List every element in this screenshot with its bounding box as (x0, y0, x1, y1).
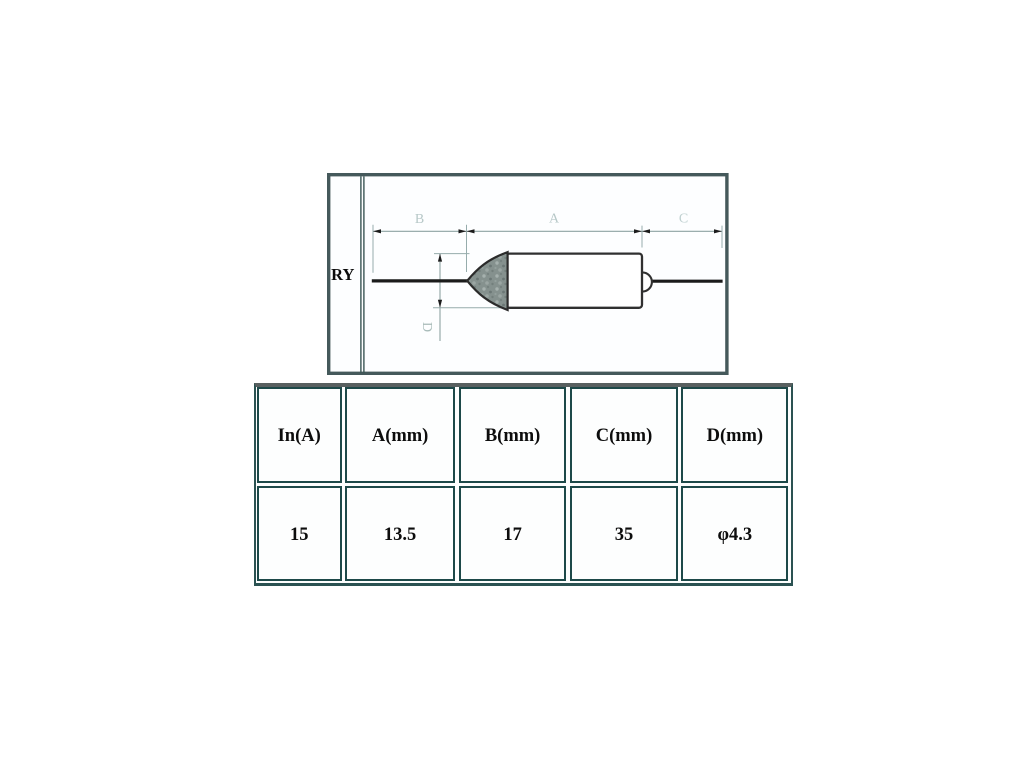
svg-text:D: D (419, 322, 434, 332)
svg-text:RY: RY (331, 265, 354, 284)
svg-text:C: C (679, 212, 688, 227)
svg-text:A: A (549, 212, 560, 227)
svg-text:B: B (415, 212, 424, 227)
